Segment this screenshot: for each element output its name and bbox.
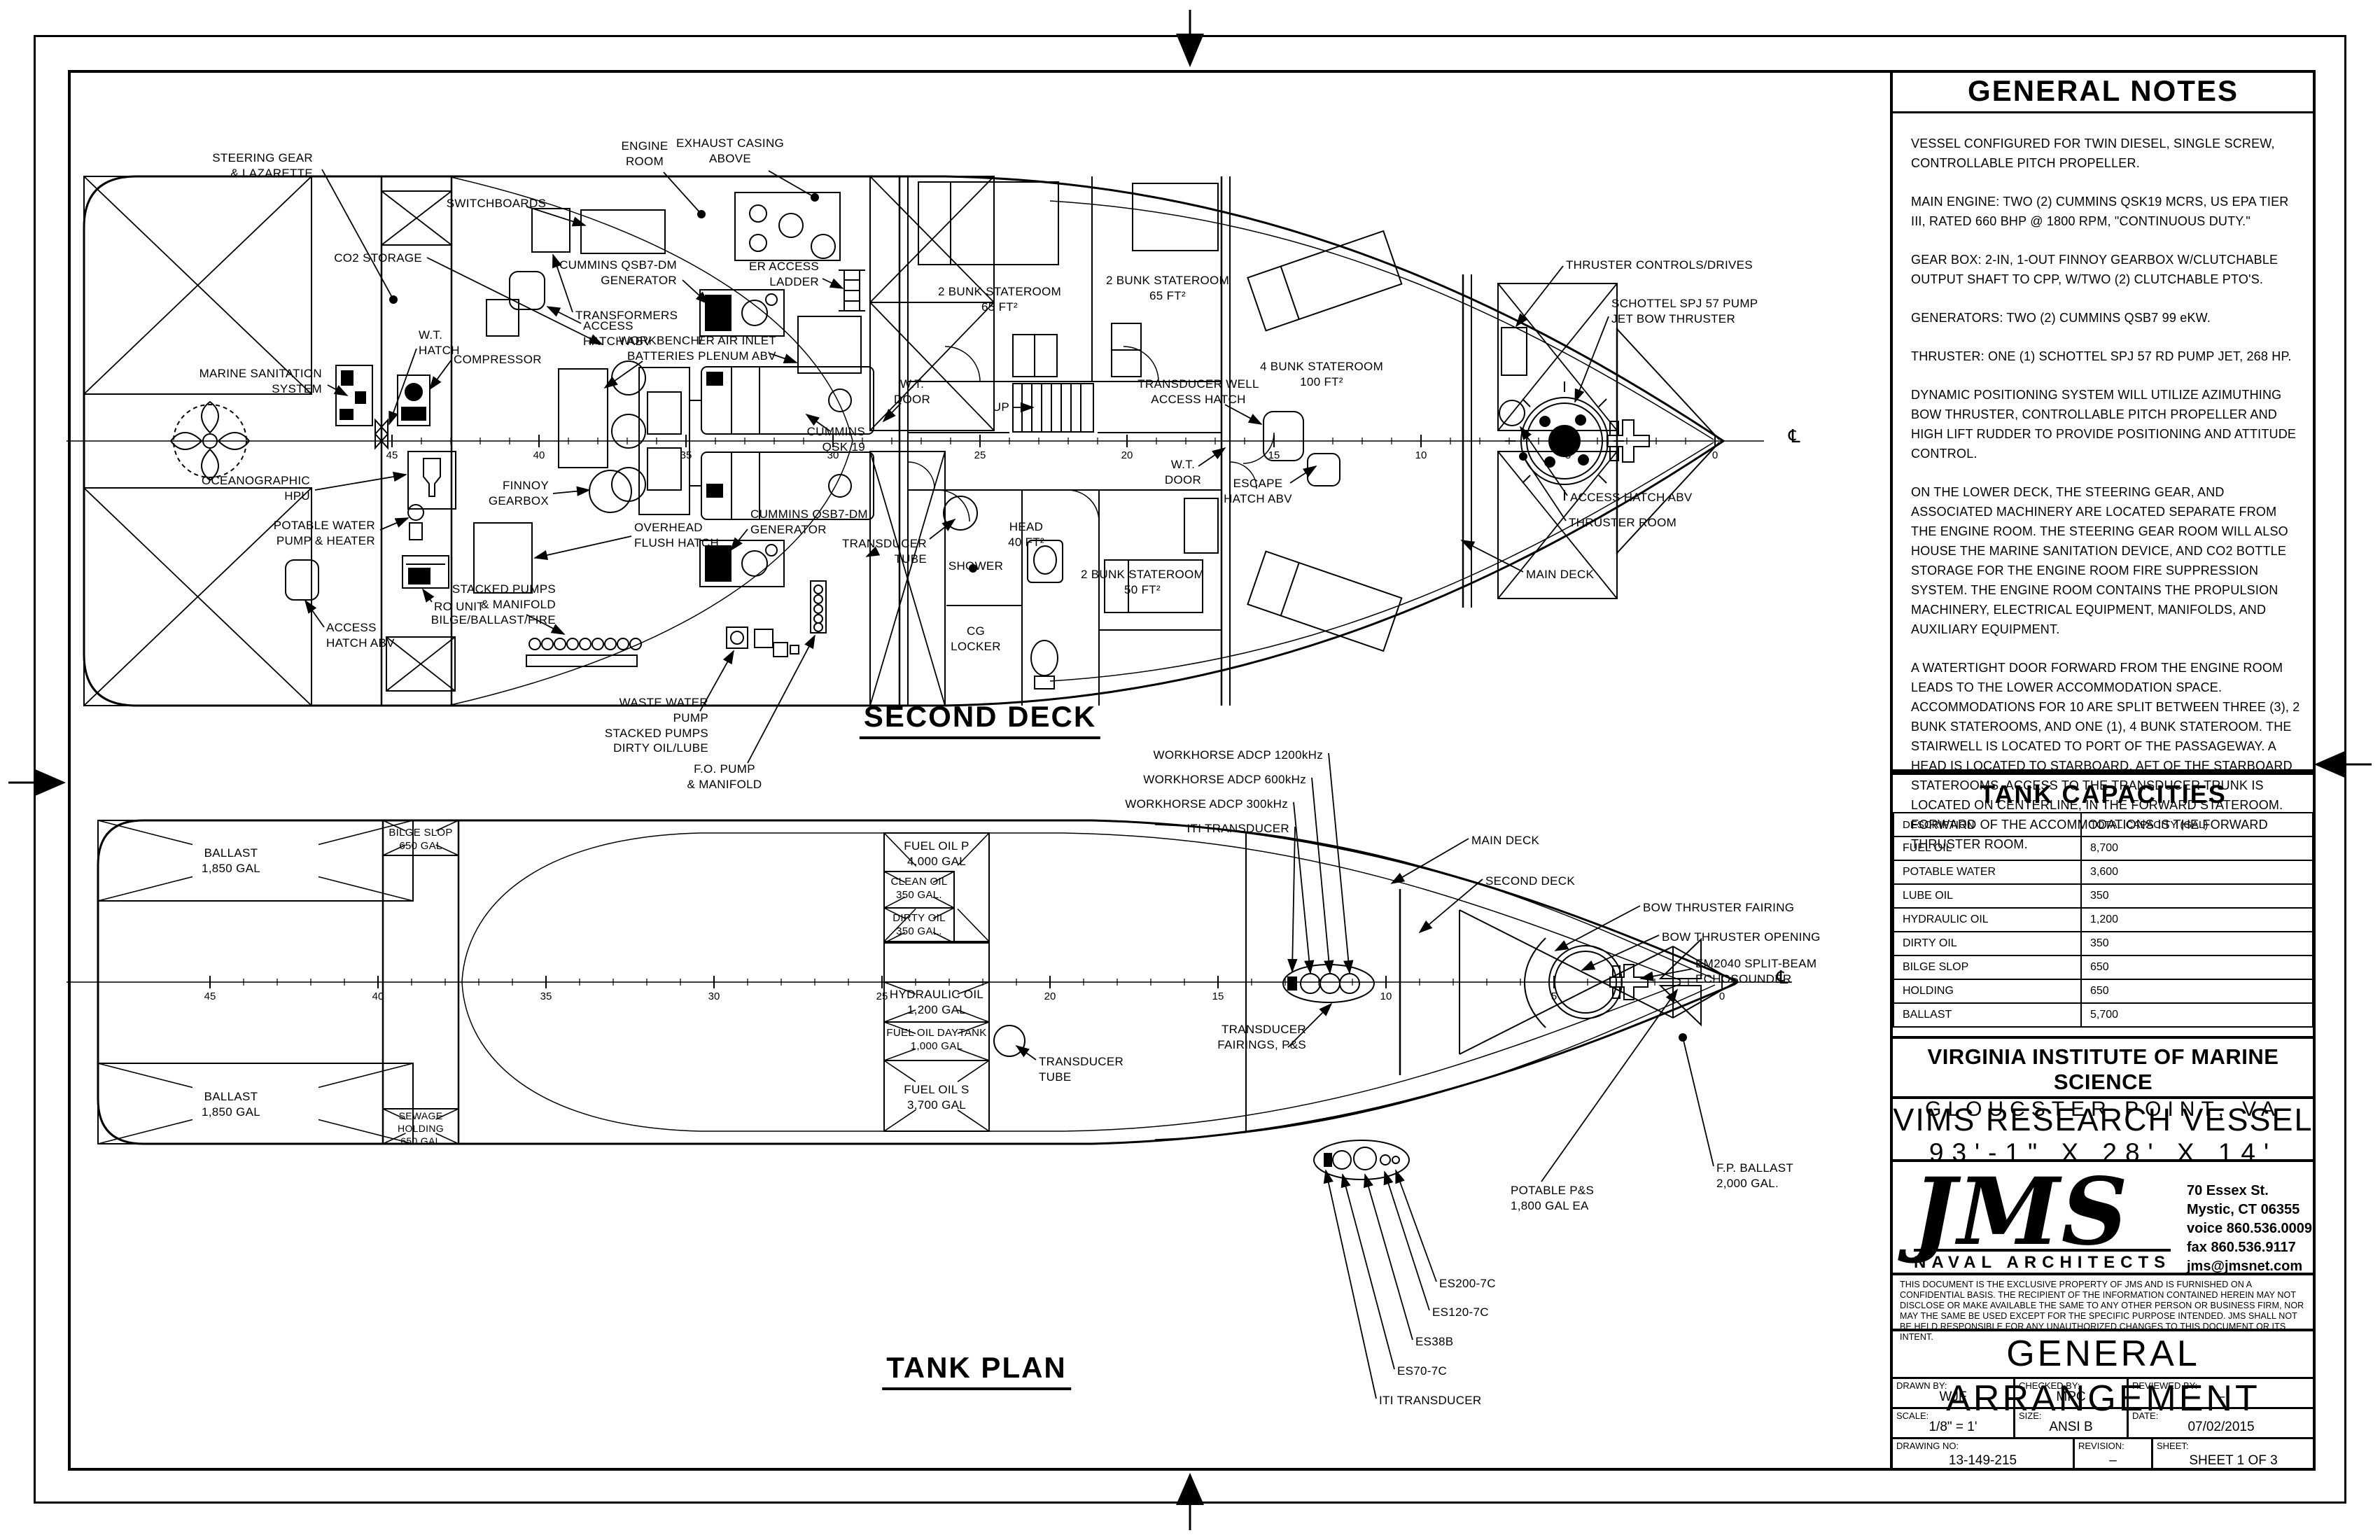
drawing-label: FUEL OIL S3,700 GAL [904,1082,969,1113]
station-label: 45 [386,449,398,461]
drawing-label: FINNOYGEARBOX [489,478,549,509]
drawing-label: F.O. PUMP& MANIFOLD [687,762,762,792]
drawing-label: STEERING GEAR& LAZARETTE [212,150,313,181]
leader-line [682,280,708,304]
drawing-label: ITI TRANSDUCER [1379,1393,1482,1408]
title-block-column: GENERAL NOTES VESSEL CONFIGURED FOR TWIN… [1890,70,2313,1471]
leader-line [1290,466,1316,483]
drawing-label: ES200-7C [1439,1276,1496,1291]
tank-capacity: 350 [2081,932,2313,955]
drawing-label: BALLAST1,850 GAL [202,1089,260,1120]
station-label: 20 [1121,449,1133,461]
revision-cell: REVISION: – [2075,1439,2153,1471]
station-label: 40 [372,990,384,1002]
tank-table-row: HOLDING650 [1893,979,2313,1003]
station-label: 25 [876,990,888,1002]
drawing-label: THRUSTER CONTROLS/DRIVES [1566,258,1753,273]
drawing-label: CUMMINS QSB7-DMGENERATOR [559,258,677,288]
leader-line [1385,1172,1429,1310]
drawing-label: CGLOCKER [951,624,1001,654]
tank-table-row: BILGE SLOP650 [1893,955,2313,979]
scale-cell: SCALE: 1/8" = 1' [1893,1409,2015,1439]
leader-line [1683,1037,1714,1166]
station-label: 0 [1712,449,1718,461]
leader-line [1365,1175,1413,1340]
date-cell: DATE: 07/02/2015 [2129,1409,2313,1439]
leader-line [328,385,347,395]
leader-line [605,361,643,388]
leader-line [1541,990,1677,1182]
general-note: GEAR BOX: 2-IN, 1-OUT FINNOY GEARBOX W/C… [1911,250,2302,289]
vessel-block: VIMS RESEARCH VESSEL 93'-1" X 28' X 14' [1893,1099,2313,1162]
drawing-label: THRUSTER ROOM [1569,515,1676,531]
drawing-label: EXHAUST CASINGABOVE [676,136,784,167]
drawing-label: SECOND DECK [1485,874,1575,889]
drawing-label: ACCESS HATCH ABV [1570,490,1693,505]
drawing-label: OVERHEADFLUSH HATCH [634,520,719,551]
station-label: 35 [540,990,552,1002]
drawing-label: CO2 STORAGE [334,251,422,266]
leader-line [553,490,589,493]
field-row-2: SCALE: 1/8" = 1' SIZE: ANSI B DATE: 07/0… [1893,1409,2313,1439]
leader-line [1641,969,1693,979]
leader-line [380,518,408,530]
tank-table-col-description: DESCRIPTION [1893,813,2081,836]
leader-line [1292,827,1295,972]
tank-capacity: 3,600 [2081,860,2313,884]
second-deck-title: SECOND DECK [860,700,1100,739]
tank-capacity: 1,200 [2081,908,2313,932]
reviewed-by-cell: REVIEWED BY: – [2129,1379,2313,1409]
disclaimer-block: THIS DOCUMENT IS THE EXCLUSIVE PROPERTY … [1893,1275,2313,1331]
centerline-symbol: ℄ [1788,426,1800,447]
drawing-label: BALLAST1,850 GAL [202,846,260,876]
tank-description: HOLDING [1893,979,2081,1003]
revision-label: REVISION: [2078,1441,2124,1451]
leader-line [1516,266,1563,326]
revision-value: – [2075,1453,2151,1469]
leader-line [1329,753,1350,973]
checked-by-value: MPC [2015,1389,2127,1405]
size-cell: SIZE: ANSI B [2015,1409,2129,1439]
leader-line [1016,1046,1036,1060]
drawing-label: WORKHORSE ADCP 1200kHz [1154,748,1323,763]
leader-line [389,349,416,424]
tank-description: POTABLE WATER [1893,860,2081,884]
tank-capacity: 650 [2081,955,2313,979]
field-row-1: DRAWN BY: WJF CHECKED BY: MPC REVIEWED B… [1893,1379,2313,1409]
drawn-by-cell: DRAWN BY: WJF [1893,1379,2015,1409]
drawing-label: DIRTY OIL350 GAL. [892,911,946,938]
drawing-label: WORKHORSE ADCP 600kHz [1143,772,1306,787]
leader-line [535,536,631,558]
station-label: 5 [1565,449,1571,461]
drawing-label: 2 BUNK STATEROOM65 FT² [938,284,1061,315]
tank-table-row: LUBE OIL350 [1893,884,2313,908]
drawing-label: POTABLE P&S1,800 GAL EA [1511,1183,1594,1214]
tank-table-row: HYDRAULIC OIL1,200 [1893,908,2313,932]
station-label: 0 [1719,990,1725,1002]
drawing-label: ENGINEROOM [622,139,668,169]
drawing-label: SCHOTTEL SPJ 57 PUMPJET BOW THRUSTER [1611,296,1758,327]
tank-capacity: 8,700 [2081,836,2313,860]
leader-line [1523,456,1566,521]
general-note: MAIN ENGINE: TWO (2) CUMMINS QSK19 MCRS,… [1911,192,2302,231]
drawing-label: UP [993,400,1009,415]
station-label: 10 [1380,990,1392,1002]
firm-address-line: 70 Essex St. [2187,1182,2312,1200]
station-label: 15 [1268,449,1280,461]
tank-description: DIRTY OIL [1893,932,2081,955]
drawing-label: ES120-7C [1432,1305,1489,1320]
drawing-label: W.T.DOOR [1165,457,1201,488]
tank-description: BALLAST [1893,1003,2081,1027]
drawing-label: MAIN DECK [1526,567,1594,582]
leader-line [1462,540,1523,572]
firm-address-line: jms@jmsnet.com [2187,1257,2312,1276]
general-notes-body: VESSEL CONFIGURED FOR TWIN DIESEL, SINGL… [1893,115,2313,772]
drawing-label: CUMMINSQSK 19 [807,424,865,455]
tank-description: BILGE SLOP [1893,955,2081,979]
firm-block: JMS NAVAL ARCHITECTS 70 Essex St.Mystic,… [1893,1162,2313,1275]
general-note: ON THE LOWER DECK, THE STEERING GEAR, AN… [1911,482,2302,639]
tank-capacities-title: TANK CAPACITIES [1893,775,2313,814]
station-label: 15 [1212,990,1224,1002]
sheet-label: SHEET: [2157,1441,2189,1451]
drawing-label: F.P. BALLAST2,000 GAL. [1716,1161,1793,1191]
owner-block: VIRGINIA INSTITUTE OF MARINE SCIENCE GLO… [1893,1036,2313,1099]
station-label: 35 [680,449,692,461]
leader-line [930,519,955,539]
owner-name: VIRGINIA INSTITUTE OF MARINE SCIENCE [1893,1044,2313,1095]
firm-address-line: fax 860.536.9117 [2187,1238,2312,1257]
drawing-label: CLEAN OIL350 GAL. [890,875,947,902]
leader-line [769,171,815,197]
drawing-label: 4 BUNK STATEROOM100 FT² [1260,359,1383,390]
drawing-label: FUEL OIL P4,000 GAL [904,839,969,869]
drawing-label: FUEL OIL DAYTANK1,000 GAL [886,1026,986,1053]
tank-table-row: FUEL OIL8,700 [1893,836,2313,860]
drawing-label: W.T.DOOR [894,377,930,407]
leader-line [1575,316,1609,402]
drawing-label: CUMMINS QSB7-DMGENERATOR [750,507,868,538]
drawing-label: HEAD40 FT² [1008,519,1044,550]
drawing-label: SEWAGEHOLDING650 GAL [398,1110,444,1148]
station-label: 30 [708,990,720,1002]
drawing-sheet: SECOND DECK℄454035302520151050STEERING G… [0,0,2380,1540]
drawing-label: BOW THRUSTER FAIRING [1643,900,1794,916]
leader-line [1582,935,1659,970]
drawing-title-band: GENERAL ARRANGEMENT [1893,1331,2313,1379]
tank-description: HYDRAULIC OIL [1893,908,2081,932]
tank-capacity: 650 [2081,979,2313,1003]
drawing-label: BOW THRUSTER OPENING [1662,930,1821,945]
drawing-label: TRANSDUCERTUBE [842,536,927,567]
date-value: 07/02/2015 [2129,1420,2313,1435]
tank-capacity: 350 [2081,884,2313,908]
station-label: 45 [204,990,216,1002]
drawing-no-cell: DRAWING NO: 13-149-215 [1893,1439,2075,1471]
drawing-label: EM2040 SPLIT-BEAMECHOSOUNDER [1695,956,1816,987]
firm-address: 70 Essex St.Mystic, CT 06355voice 860.53… [2187,1182,2312,1276]
station-label: 10 [1415,449,1427,461]
jms-logo: JMS [1912,1166,2129,1259]
leader-line [1420,879,1483,932]
jms-subtitle: NAVAL ARCHITECTS [1914,1249,2171,1273]
drawing-label: TRANSDUCERTUBE [1039,1054,1123,1085]
drawing-label: TRANSFORMERS [575,308,678,323]
checked-by-cell: CHECKED BY: MPC [2015,1379,2129,1409]
station-label: 25 [974,449,986,461]
firm-address-line: Mystic, CT 06355 [2187,1200,2312,1219]
drawing-label: STACKED PUMPS& MANIFOLDBILGE/BALLAST/FIR… [431,582,556,627]
sheet-cell: SHEET: SHEET 1 OF 3 [2153,1439,2313,1471]
general-notes-title: GENERAL NOTES [1893,70,2313,112]
leader-line [748,636,815,763]
drawing-label: MARINE SANITATIONSYSTEM [199,366,322,397]
drawing-label: ER AIR INLETPLENUM ABV [698,333,776,364]
leader-line [1225,405,1261,424]
drawing-label: SWITCHBOARDS [447,196,546,211]
tank-description: FUEL OIL [1893,836,2081,860]
tank-capacities-header: TANK CAPACITIES [1893,772,2313,812]
leader-line [430,360,451,389]
drawing-label: OCEANOGRAPHICHPU [202,473,310,504]
tank-capacities-table: DESCRIPTION TOTAL CAPACITY (GAL) FUEL OI… [1893,812,2313,1028]
leader-line [1294,802,1310,973]
size-value: ANSI B [2015,1420,2127,1435]
drawing-no-value: 13-149-215 [1893,1453,2073,1469]
drawing-label: WORKBENCH/BATTERIES [619,333,703,364]
leader-line [1343,1175,1394,1369]
firm-address-line: voice 860.536.0009 [2187,1219,2312,1238]
sheet-value: SHEET 1 OF 3 [2153,1453,2313,1469]
drawing-label: TRANSDUCER WELLACCESS HATCH [1137,377,1259,407]
general-note: THRUSTER: ONE (1) SCHOTTEL SPJ 57 RD PUM… [1911,346,2302,366]
station-label: 20 [1044,990,1056,1002]
general-note: GENERATORS: TWO (2) CUMMINS QSB7 99 eKW. [1911,308,2302,328]
leader-line [305,601,324,627]
tank-plan-title: TANK PLAN [882,1351,1071,1390]
leader-line [1198,448,1225,466]
general-note: DYNAMIC POSITIONING SYSTEM WILL UTILIZE … [1911,385,2302,463]
leader-line [322,169,393,300]
drawing-label: ITI TRANSDUCER [1186,821,1289,836]
station-label: 5 [1551,990,1557,1002]
tank-table-row: POTABLE WATER3,600 [1893,860,2313,884]
leader-line [1312,778,1330,973]
tank-table-col-capacity: TOTAL CAPACITY (GAL) [2081,813,2313,836]
drawing-label: SHOWER [948,559,1003,574]
drawing-label: POTABLE WATERPUMP & HEATER [274,518,375,549]
tank-table-row: BALLAST5,700 [1893,1003,2313,1027]
leader-line [1555,906,1640,951]
scale-value: 1/8" = 1' [1893,1420,2013,1435]
general-notes-header: GENERAL NOTES [1893,70,2313,113]
drawing-label: MAIN DECK [1471,833,1539,848]
leader-line [731,529,748,550]
drawing-label: TRANSDUCERFAIRINGS, P&S [1217,1022,1306,1053]
reviewed-by-value: – [2129,1389,2313,1405]
drawing-label: 2 BUNK STATEROOM65 FT² [1106,273,1229,304]
general-note: VESSEL CONFIGURED FOR TWIN DIESEL, SINGL… [1911,134,2302,173]
drawing-label: ES38B [1415,1334,1453,1350]
drawing-label: ES70-7C [1397,1364,1447,1379]
tank-table-row: DIRTY OIL350 [1893,932,2313,955]
tank-description: LUBE OIL [1893,884,2081,908]
leader-line [1392,839,1469,883]
drawing-label: 2 BUNK STATEROOM50 FT² [1081,567,1204,598]
drawing-label: ACCESSHATCH ABV [326,620,395,651]
drawing-label: ESCAPEHATCH ABV [1224,476,1292,507]
leader-line [315,475,406,490]
field-row-3: DRAWING NO: 13-149-215 REVISION: – SHEET… [1893,1439,2313,1471]
tank-capacity: 5,700 [2081,1003,2313,1027]
drawing-label: BILGE SLOP650 GAL [388,826,452,853]
drawing-label: WASTE WATERPUMPSTACKED PUMPSDIRTY OIL/LU… [605,695,708,756]
drawn-by-value: WJF [1893,1389,2013,1405]
leader-line [822,279,843,288]
drawing-label: COMPRESSOR [454,352,542,367]
drawing-label: HYDRAULIC OIL1,200 GAL [890,987,983,1018]
drawing-no-label: DRAWING NO: [1896,1441,1959,1451]
leader-line [1520,427,1567,496]
drawing-label: WORKHORSE ADCP 300kHz [1125,797,1288,812]
station-label: 40 [533,449,545,461]
leader-line [664,172,701,214]
drawing-label: ER ACCESSLADDER [749,259,819,290]
vessel-name: VIMS RESEARCH VESSEL [1893,1102,2313,1138]
